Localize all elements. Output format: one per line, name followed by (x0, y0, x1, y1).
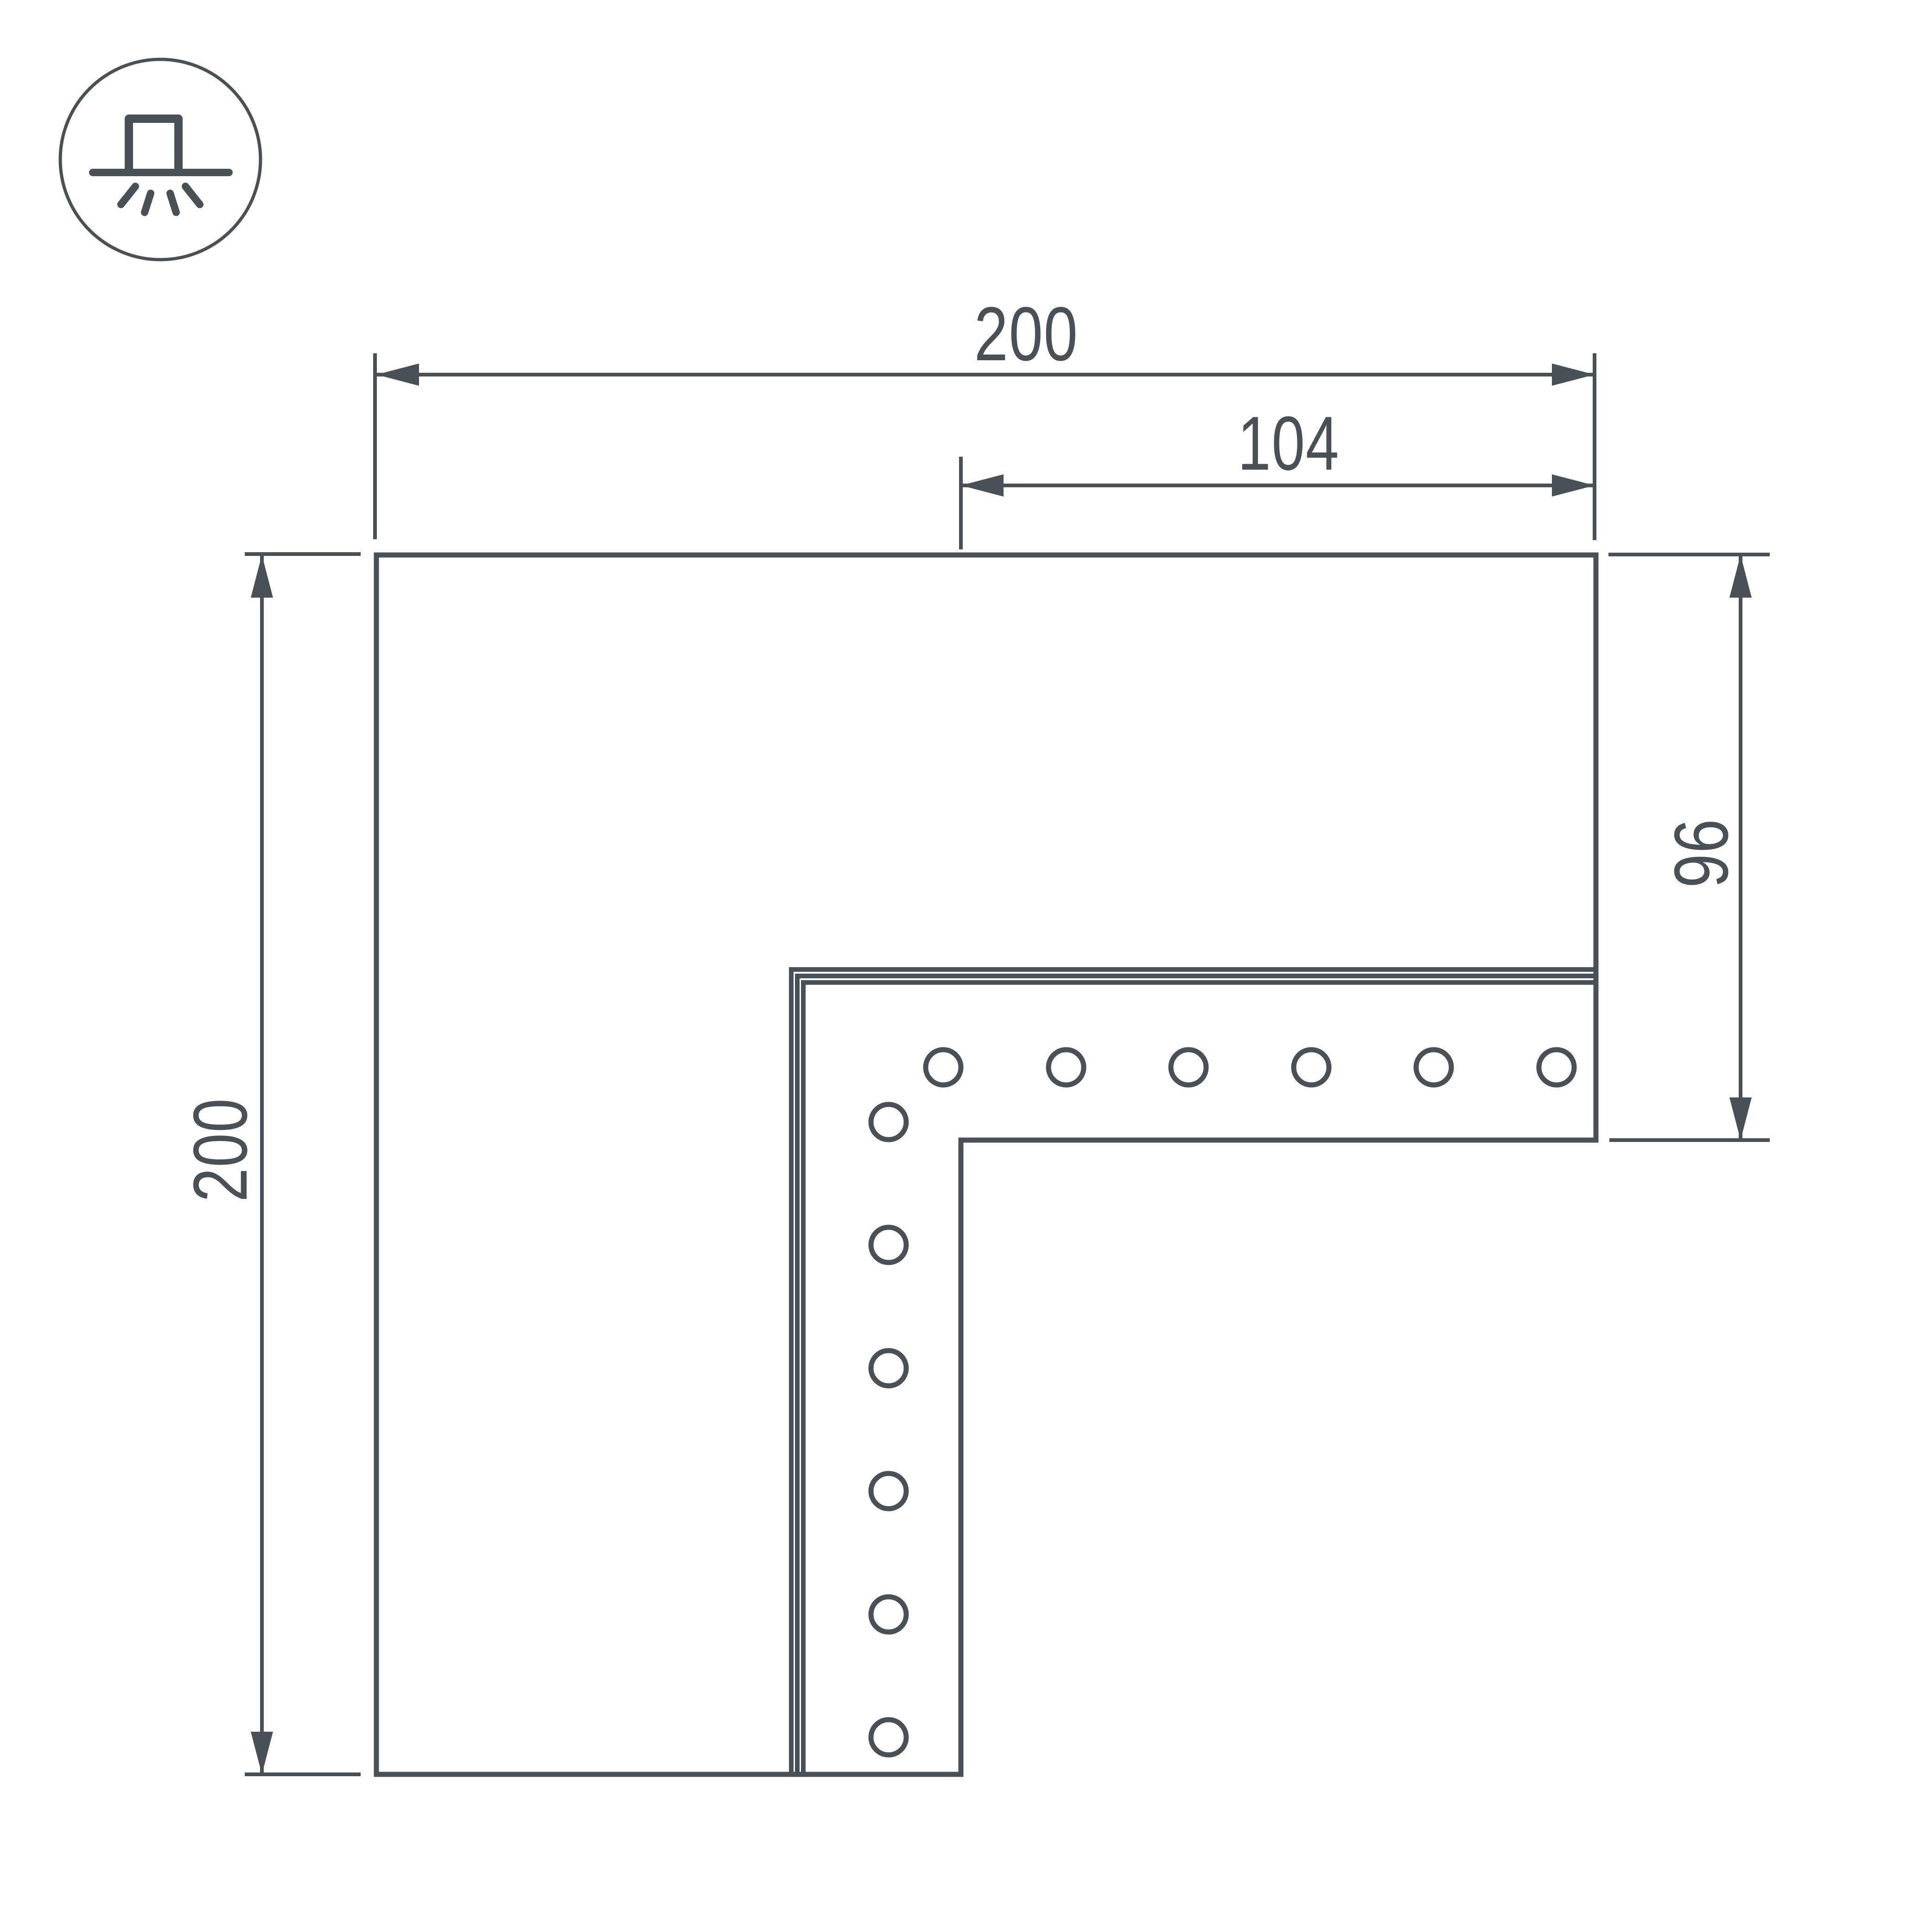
profile-outline (376, 555, 1596, 1774)
mounting-hole (871, 1227, 906, 1262)
arrowhead-up (251, 555, 273, 598)
mounting-hole (871, 1720, 906, 1755)
edge-line-middle (797, 976, 1594, 1773)
mounting-hole (871, 1473, 906, 1509)
mounting-hole (1416, 1050, 1451, 1085)
dimension-top-width: 200 (375, 291, 1595, 540)
edge-line-inner (803, 982, 1594, 1773)
arrowhead-left (376, 363, 419, 386)
mounting-hole (871, 1104, 906, 1140)
arrowhead-down (251, 1732, 273, 1774)
light-ray (121, 186, 135, 204)
icon-circle (60, 59, 261, 260)
light-ray (170, 193, 176, 212)
dimension-right-height: 96 (1608, 555, 1770, 1140)
icon-fixture-box (129, 119, 178, 173)
mounting-holes-horizontal (926, 1050, 1574, 1085)
dimension-label-right-height: 96 (1659, 818, 1744, 888)
dimension-left-height: 200 (178, 554, 361, 1774)
profile-body (376, 555, 1596, 1774)
mounting-hole (871, 1351, 906, 1386)
surface-mounted-luminaire-icon (60, 59, 261, 260)
technical-drawing: 200 104 200 (0, 0, 1932, 1932)
mounting-holes-vertical (871, 1104, 906, 1755)
mounting-hole (1171, 1050, 1206, 1085)
arrowhead-up (1729, 555, 1752, 598)
edge-line-outer (791, 969, 1594, 1773)
light-ray (145, 193, 151, 212)
mounting-hole (1539, 1050, 1574, 1085)
dimension-inner-width: 104 (961, 401, 1595, 549)
dimension-label-inner-width: 104 (1238, 401, 1340, 486)
dimension-lines (375, 353, 1595, 540)
dimension-label-left-height: 200 (178, 1098, 263, 1202)
light-ray (185, 186, 200, 204)
connector-edge-lines (791, 969, 1594, 1773)
arrowhead-right (1552, 474, 1595, 497)
arrowhead-left (961, 474, 1004, 497)
mounting-hole (871, 1597, 906, 1632)
mounting-hole (1049, 1050, 1084, 1085)
arrowhead-down (1729, 1097, 1752, 1140)
mounting-hole (1294, 1050, 1329, 1085)
icon-light-rays (121, 186, 200, 212)
dimension-label-top-width: 200 (974, 291, 1079, 376)
arrowhead-right (1552, 363, 1595, 386)
mounting-hole (926, 1050, 961, 1085)
